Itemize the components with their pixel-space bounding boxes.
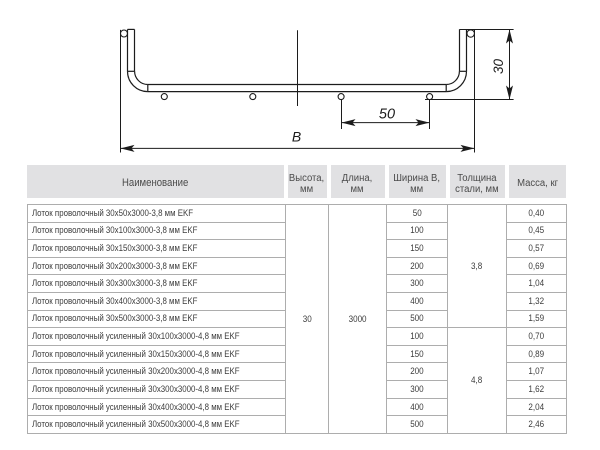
svg-text:30: 30 [491, 59, 506, 75]
svg-text:B: B [292, 129, 301, 145]
svg-text:50: 50 [379, 107, 395, 123]
